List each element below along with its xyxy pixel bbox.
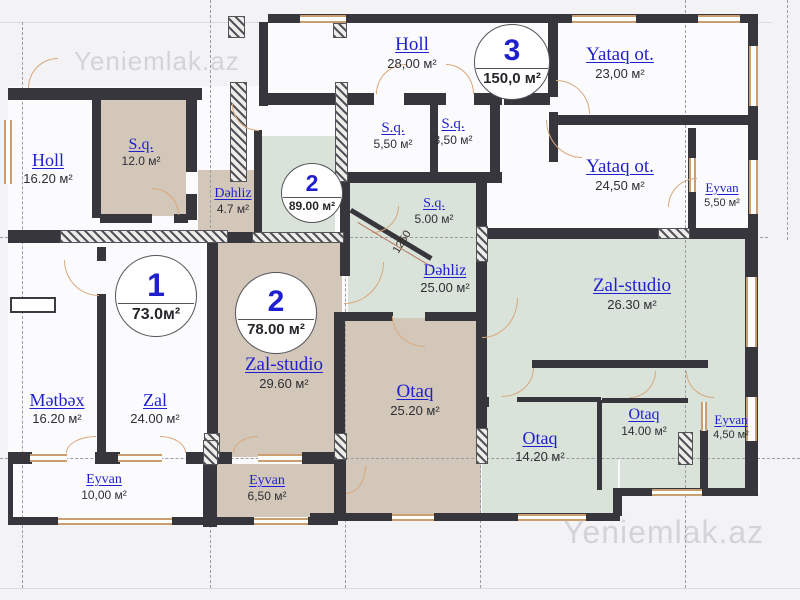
wall <box>172 517 214 525</box>
room-eyvan-10: Eyvan10,00 м² <box>81 472 127 503</box>
room-name: Zal <box>130 390 179 411</box>
apartment-badge-3: 3 150,0 м² <box>474 24 550 100</box>
room-area: 12.0 м² <box>122 155 161 169</box>
room-eyvan-6-50: Eyvan6,50 м² <box>248 473 287 504</box>
room-name: Holl <box>387 34 436 56</box>
room-name: Otaq <box>515 428 564 449</box>
wall <box>480 397 489 407</box>
room-holl-28: Holl28,00 м² <box>387 34 436 72</box>
apartment-number: 1 <box>147 269 165 301</box>
window <box>698 15 740 23</box>
room-area: 14.00 м² <box>621 425 667 439</box>
wall <box>334 312 345 435</box>
apartment-badge-1: 1 73.0м² <box>115 255 197 337</box>
room-area: 4.7 м² <box>214 203 251 217</box>
wall <box>100 214 152 223</box>
wall <box>490 103 500 183</box>
badge-divider <box>118 303 195 304</box>
window <box>254 518 308 525</box>
wall <box>556 115 753 125</box>
room-name: Mətbəx <box>30 390 85 411</box>
room-area: 26.30 м² <box>593 298 671 313</box>
room-name: S.q. <box>434 116 473 133</box>
wall <box>343 312 393 321</box>
room-name: Zal-studio <box>245 354 323 376</box>
wall <box>186 100 197 172</box>
wall <box>95 452 120 464</box>
room-yataq-23: Yataq ot.23,00 м² <box>586 44 654 82</box>
apartment-area: 73.0м² <box>132 306 180 324</box>
room-name: Eyvan <box>713 413 749 428</box>
room-sq-5-50: S.q.5,50 м² <box>374 120 413 152</box>
watermark-bottom: Yeniemlak.az <box>563 514 764 551</box>
wall <box>517 397 601 402</box>
room-name: Eyvan <box>81 472 127 488</box>
hatched-wall <box>476 428 488 464</box>
room-name: S.q. <box>374 120 413 137</box>
room-sq-5-00: S.q.5.00 м² <box>415 196 454 227</box>
room-zal-studio-29: Zal-studio29.60 м² <box>245 354 323 392</box>
wall <box>97 294 106 454</box>
window <box>300 15 346 23</box>
apartment-badge-2-89: 2 89.00 м² <box>281 163 343 223</box>
floor-plan: 1250 Holl16.20 м² S.q.12.0 м² Dəhliz4.7 … <box>0 0 800 600</box>
badge-divider <box>476 68 547 69</box>
wall <box>212 517 254 525</box>
wall <box>92 100 101 218</box>
hatched-wall <box>333 23 347 38</box>
door-arc <box>28 58 58 88</box>
apartment-area: 89.00 м² <box>289 200 335 213</box>
room-area: 14.20 м² <box>515 450 564 465</box>
wall <box>480 228 758 239</box>
room-name: Eyvan <box>248 473 287 489</box>
room-area: 25.00 м² <box>420 281 469 296</box>
hatched-wall <box>228 16 245 38</box>
room-yataq-24: Yataq ot.24,50 м² <box>586 156 654 194</box>
room-eyvan-5-50: Eyvan5,50 м² <box>704 181 740 210</box>
wall <box>602 398 688 403</box>
room-area: 24,50 м² <box>586 179 654 194</box>
wall <box>174 214 188 223</box>
room-area: 5,50 м² <box>374 138 413 152</box>
room-holl-16: Holl16.20 м² <box>23 150 72 187</box>
wall <box>254 130 262 232</box>
room-dahliz-4: Dəhliz4.7 м² <box>214 186 251 217</box>
window <box>749 160 758 214</box>
room-otaq-14-00: Otaq14.00 м² <box>621 406 667 439</box>
badge-divider <box>238 319 315 320</box>
room-area: 25.20 м² <box>390 404 439 419</box>
apartment-area: 78.00 м² <box>247 322 305 339</box>
room-matbax: Mətbəx16.20 м² <box>30 390 85 427</box>
wall <box>8 517 58 525</box>
hatched-wall <box>658 228 690 239</box>
room-area: 29.60 м² <box>245 377 323 392</box>
sheet-line <box>0 588 800 589</box>
room-dahliz-25: Dəhliz25.00 м² <box>420 262 469 296</box>
window <box>4 120 12 184</box>
hatched-wall <box>203 440 218 465</box>
wall <box>404 93 446 105</box>
wall <box>348 93 374 105</box>
room-name: Dəhliz <box>420 262 469 280</box>
apartment-area: 150,0 м² <box>483 71 541 88</box>
window-box <box>10 297 56 313</box>
window <box>572 15 636 23</box>
room-name: Yataq ot. <box>586 156 654 178</box>
wall <box>348 172 502 183</box>
apartment-number: 3 <box>504 36 521 66</box>
window <box>701 402 707 431</box>
wall <box>310 513 392 521</box>
wall <box>532 360 708 368</box>
room-area: 24.00 м² <box>130 412 179 427</box>
window <box>392 514 434 521</box>
room-name: Eyvan <box>704 181 740 196</box>
room-sq-12: S.q.12.0 м² <box>122 136 161 169</box>
window <box>58 518 172 525</box>
room-area: 16.20 м² <box>23 172 72 187</box>
watermark-top: Yeniemlak.az <box>74 46 240 77</box>
axis-line <box>685 0 686 588</box>
window <box>258 454 302 462</box>
window <box>118 454 162 462</box>
room-name: Yataq ot. <box>586 44 654 66</box>
room-area: 4,50 м² <box>713 429 749 442</box>
wall <box>597 400 602 490</box>
room-otaq-14-20: Otaq14.20 м² <box>515 428 564 465</box>
room-area: 16.20 м² <box>30 412 85 427</box>
window <box>652 489 702 496</box>
room-sq-3-50: S.q.3,50 м² <box>434 116 473 148</box>
room-name: Otaq <box>621 406 667 424</box>
hatched-wall <box>335 82 348 182</box>
apartment-number: 2 <box>268 287 285 317</box>
room-area: 10,00 м² <box>81 489 127 503</box>
wall <box>8 455 13 525</box>
wall <box>228 232 254 243</box>
room-name: S.q. <box>122 136 161 154</box>
room-otaq-25: Otaq25.20 м² <box>390 381 439 419</box>
room-name: Otaq <box>390 381 439 403</box>
wall <box>8 230 62 243</box>
room-area: 5.00 м² <box>415 213 454 227</box>
wall <box>8 88 202 100</box>
room-area: 5,50 м² <box>704 197 740 210</box>
wall <box>207 243 218 454</box>
room-zal: Zal24.00 м² <box>130 390 179 427</box>
window <box>746 277 757 347</box>
window <box>749 46 758 106</box>
hatched-wall <box>230 82 247 182</box>
hatched-wall <box>252 232 344 243</box>
room-name: Zal-studio <box>593 275 671 297</box>
room-area: 3,50 м² <box>434 134 473 148</box>
room-area: 23,00 м² <box>586 67 654 82</box>
room-eyvan-4-50: Eyvan4,50 м² <box>713 413 749 442</box>
room-area: 6,50 м² <box>248 490 287 504</box>
room-area: 28,00 м² <box>387 57 436 72</box>
wall <box>425 312 481 321</box>
wall <box>97 247 106 261</box>
hatched-wall <box>678 432 693 465</box>
apartment-number: 2 <box>306 172 319 195</box>
hatched-wall <box>476 226 488 262</box>
room-zal-studio-26: Zal-studio26.30 м² <box>593 275 671 313</box>
room-name: Dəhliz <box>214 186 251 202</box>
apartment-badge-2-78: 2 78.00 м² <box>235 272 317 354</box>
axis-line <box>787 0 788 240</box>
badge-divider <box>283 197 341 198</box>
room-name: S.q. <box>415 196 454 212</box>
window <box>30 454 67 462</box>
wall <box>700 430 708 490</box>
hatched-wall <box>334 433 347 460</box>
hatched-wall <box>60 230 228 243</box>
room-name: Holl <box>23 150 72 171</box>
